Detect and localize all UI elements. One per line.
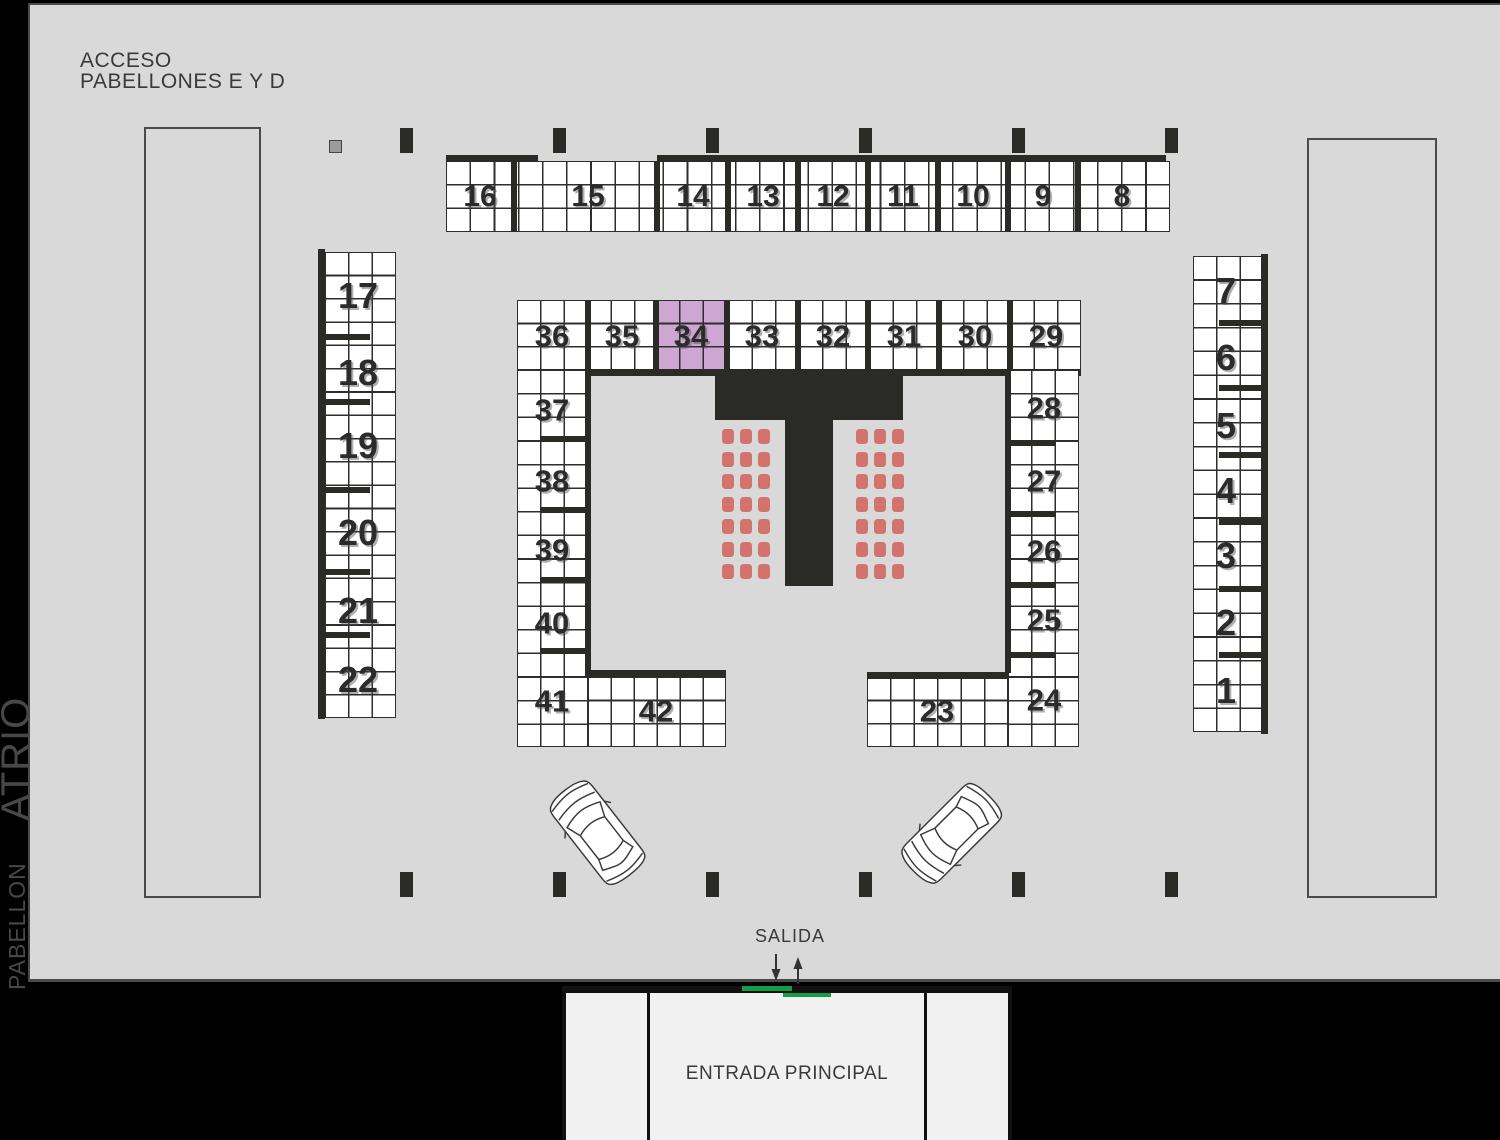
booth-divider <box>867 672 1008 679</box>
booth-7[interactable]: 7 <box>1216 273 1236 309</box>
booth-39[interactable]: 39 <box>535 535 569 566</box>
booth-divider <box>322 569 370 575</box>
booth-41[interactable]: 41 <box>535 686 569 717</box>
chair-icon <box>722 542 734 557</box>
booth-divider <box>588 670 726 677</box>
gray-marker <box>329 140 342 153</box>
booth-divider <box>724 300 730 370</box>
booth-14[interactable]: 14 <box>676 182 709 212</box>
chair-icon <box>892 497 904 512</box>
chair-icon <box>722 519 734 534</box>
pillar <box>1012 872 1025 897</box>
booth-divider <box>936 300 942 370</box>
booth-divider <box>935 161 941 232</box>
booth-11[interactable]: 11 <box>887 182 919 212</box>
acceso-line2: PABELLONES E Y D <box>80 71 285 92</box>
chair-icon <box>740 497 752 512</box>
stage-t-stem <box>785 420 833 586</box>
chair-icon <box>722 474 734 489</box>
chair-icon <box>892 474 904 489</box>
booth-31[interactable]: 31 <box>887 321 921 352</box>
booth-divider <box>795 300 801 370</box>
booth-42[interactable]: 42 <box>639 696 673 727</box>
chair-icon <box>874 474 886 489</box>
pillar <box>1012 128 1025 153</box>
pillar <box>706 872 719 897</box>
chair-icon <box>856 542 868 557</box>
entrance-panel-center: ENTRADA PRINCIPAL <box>650 993 924 1140</box>
booth-8[interactable]: 8 <box>1114 182 1131 212</box>
booth-34[interactable]: 34 <box>674 321 708 352</box>
chair-icon <box>758 497 770 512</box>
booth-divider <box>865 300 871 370</box>
booth-1[interactable]: 1 <box>1216 673 1236 709</box>
booth-divider <box>585 300 591 370</box>
chair-icon <box>740 564 752 579</box>
booth-10[interactable]: 10 <box>956 182 989 212</box>
booth-32[interactable]: 32 <box>816 321 850 352</box>
booth-4[interactable]: 4 <box>1216 473 1236 509</box>
booth-divider <box>865 161 871 232</box>
booth-divider <box>585 369 591 677</box>
booth-divider <box>1005 582 1055 588</box>
chair-icon <box>874 497 886 512</box>
booth-divider <box>1219 652 1267 658</box>
booth-divider <box>540 507 591 513</box>
booth-divider <box>795 161 801 232</box>
chair-icon <box>892 519 904 534</box>
chair-icon <box>740 519 752 534</box>
booth-divider <box>1005 369 1011 673</box>
booth-grid-outer-left <box>325 252 396 718</box>
booth-divider <box>1219 385 1267 391</box>
booth-divider <box>322 632 370 638</box>
booth-26[interactable]: 26 <box>1027 536 1061 567</box>
chair-icon <box>722 452 734 467</box>
booth-divider <box>1005 440 1055 446</box>
chair-icon <box>722 564 734 579</box>
pillar <box>400 128 413 153</box>
chair-icon <box>874 542 886 557</box>
booth-3[interactable]: 3 <box>1216 538 1236 574</box>
chair-icon <box>740 474 752 489</box>
chair-icon <box>892 542 904 557</box>
chair-icon <box>892 564 904 579</box>
entrance-panel-left <box>566 993 647 1140</box>
chair-icon <box>856 497 868 512</box>
booth-divider <box>1007 300 1013 370</box>
booth-divider <box>322 334 370 340</box>
pillar <box>706 128 719 153</box>
chair-icon <box>856 519 868 534</box>
booth-28[interactable]: 28 <box>1027 393 1061 424</box>
chair-icon <box>758 519 770 534</box>
booth-19[interactable]: 19 <box>338 428 378 464</box>
booth-2[interactable]: 2 <box>1216 605 1236 641</box>
booth-5[interactable]: 5 <box>1216 408 1236 444</box>
chair-icon <box>856 474 868 489</box>
stage-t-top <box>715 376 903 420</box>
chair-icon <box>856 452 868 467</box>
booth-18[interactable]: 18 <box>338 355 378 391</box>
booth-divider <box>540 577 591 583</box>
pillar <box>1165 872 1178 897</box>
chair-icon <box>740 542 752 557</box>
chair-icon <box>758 452 770 467</box>
chair-icon <box>758 542 770 557</box>
pillar <box>553 128 566 153</box>
booth-30[interactable]: 30 <box>958 321 992 352</box>
booth-36[interactable]: 36 <box>535 321 569 352</box>
booth-23[interactable]: 23 <box>920 696 954 727</box>
booth-33[interactable]: 33 <box>745 321 779 352</box>
exit-arrows-icon <box>758 952 810 986</box>
booth-27[interactable]: 27 <box>1027 466 1061 497</box>
booth-15[interactable]: 15 <box>571 182 604 212</box>
booth-35[interactable]: 35 <box>605 321 639 352</box>
chair-icon <box>740 452 752 467</box>
booth-divider <box>1005 161 1011 232</box>
booth-divider <box>540 648 591 654</box>
chair-icon <box>874 519 886 534</box>
pabellon-vertical-label: PABELLON <box>6 862 29 990</box>
chair-icon <box>722 429 734 444</box>
booth-24[interactable]: 24 <box>1027 685 1061 716</box>
pillar <box>553 872 566 897</box>
atrio-vertical-label: ATRIO <box>0 697 36 821</box>
booth-22[interactable]: 22 <box>338 662 378 698</box>
pillar <box>400 872 413 897</box>
exit-door-marker <box>742 986 792 991</box>
booth-40[interactable]: 40 <box>535 608 569 639</box>
pillar <box>1165 128 1178 153</box>
booth-divider <box>1261 254 1268 734</box>
booth-divider <box>322 399 370 405</box>
booth-12[interactable]: 12 <box>816 182 849 212</box>
entrance-panel-right <box>927 993 1008 1140</box>
booth-divider <box>511 161 517 232</box>
booth-20[interactable]: 20 <box>338 515 378 551</box>
booth-divider <box>1005 652 1055 658</box>
booth-6[interactable]: 6 <box>1216 340 1236 376</box>
booth-divider <box>725 161 731 232</box>
booth-divider <box>1075 161 1081 232</box>
booth-divider <box>322 487 370 493</box>
booth-divider <box>1219 452 1267 458</box>
acceso-line1: ACCESO <box>80 50 285 71</box>
booth-divider <box>1219 519 1267 525</box>
pillar <box>859 872 872 897</box>
entrance-building: ENTRADA PRINCIPAL <box>562 986 1012 1140</box>
chair-icon <box>892 452 904 467</box>
chair-icon <box>722 497 734 512</box>
chair-icon <box>874 564 886 579</box>
booth-21[interactable]: 21 <box>338 593 378 629</box>
booth-divider <box>654 161 660 232</box>
salida-label: SALIDA <box>755 926 825 947</box>
booth-divider <box>545 369 1081 376</box>
booth-divider <box>653 300 659 370</box>
booth-divider <box>1005 511 1055 517</box>
floor-plan: ACCESO PABELLONES E Y D ATRIO PABELLON S… <box>0 0 1500 1140</box>
booth-25[interactable]: 25 <box>1027 605 1061 636</box>
booth-37[interactable]: 37 <box>535 395 569 426</box>
acceso-label: ACCESO PABELLONES E Y D <box>80 50 285 92</box>
chair-icon <box>758 564 770 579</box>
booth-divider <box>540 436 591 442</box>
pillar <box>859 128 872 153</box>
booth-divider <box>446 155 538 162</box>
chair-icon <box>758 429 770 444</box>
chair-icon <box>758 474 770 489</box>
booth-16[interactable]: 16 <box>463 182 496 212</box>
booth-29[interactable]: 29 <box>1029 321 1063 352</box>
booth-divider <box>1219 586 1267 592</box>
chair-icon <box>874 452 886 467</box>
booth-38[interactable]: 38 <box>535 466 569 497</box>
chair-icon <box>892 429 904 444</box>
booth-9[interactable]: 9 <box>1035 182 1052 212</box>
right-zone-rect <box>1307 138 1437 898</box>
chair-icon <box>874 429 886 444</box>
chair-icon <box>856 429 868 444</box>
left-zone-rect <box>144 127 261 898</box>
entry-door-marker <box>783 993 831 997</box>
booth-13[interactable]: 13 <box>746 182 779 212</box>
booth-divider <box>1219 320 1267 326</box>
entrada-principal-label: ENTRADA PRINCIPAL <box>686 1063 888 1085</box>
chair-icon <box>740 429 752 444</box>
booth-divider <box>657 155 1166 162</box>
booth-17[interactable]: 17 <box>338 278 378 314</box>
booth-grid-outer-top <box>446 161 1170 232</box>
booth-divider <box>318 249 325 719</box>
chair-icon <box>856 564 868 579</box>
